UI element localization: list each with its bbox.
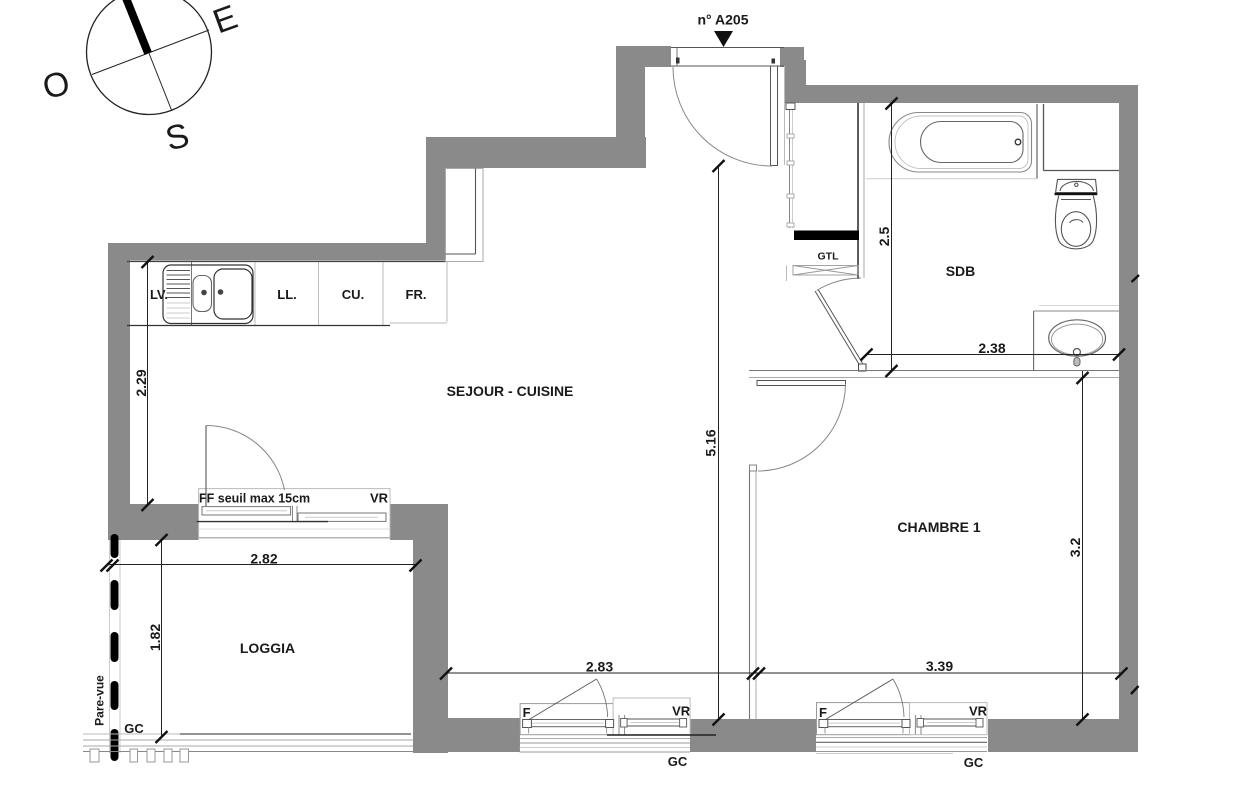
svg-text:FR.: FR. (406, 287, 427, 302)
svg-text:LOGGIA: LOGGIA (240, 640, 295, 656)
svg-text:GTL: GTL (818, 251, 840, 263)
svg-text:CHAMBRE 1: CHAMBRE 1 (897, 519, 980, 535)
svg-text:LL.: LL. (277, 287, 297, 302)
svg-text:SEJOUR - CUISINE: SEJOUR - CUISINE (447, 383, 574, 399)
svg-text:Pare-vue: Pare-vue (93, 675, 107, 726)
svg-text:3.2: 3.2 (1067, 538, 1083, 558)
svg-text:GC: GC (668, 754, 688, 769)
svg-text:VR: VR (969, 704, 988, 719)
svg-text:F: F (523, 705, 531, 720)
svg-text:n° A205: n° A205 (698, 12, 749, 28)
svg-text:VR: VR (672, 704, 691, 719)
svg-text:2.83: 2.83 (586, 659, 613, 675)
svg-text:3.39: 3.39 (926, 658, 953, 674)
svg-text:LV.: LV. (150, 287, 168, 302)
svg-text:VR: VR (370, 491, 389, 506)
svg-text:1.82: 1.82 (147, 624, 163, 651)
svg-text:2.82: 2.82 (250, 551, 277, 567)
svg-text:SDB: SDB (946, 263, 976, 279)
svg-text:5.16: 5.16 (703, 429, 719, 456)
svg-text:CU.: CU. (342, 287, 364, 302)
svg-text:2.5: 2.5 (876, 227, 892, 247)
svg-text:F: F (819, 705, 827, 720)
svg-text:2.38: 2.38 (978, 340, 1005, 356)
svg-text:GC: GC (124, 721, 144, 736)
svg-text:GC: GC (964, 755, 984, 770)
svg-text:2.29: 2.29 (133, 369, 149, 396)
svg-text:FF seuil max 15cm: FF seuil max 15cm (199, 492, 310, 506)
